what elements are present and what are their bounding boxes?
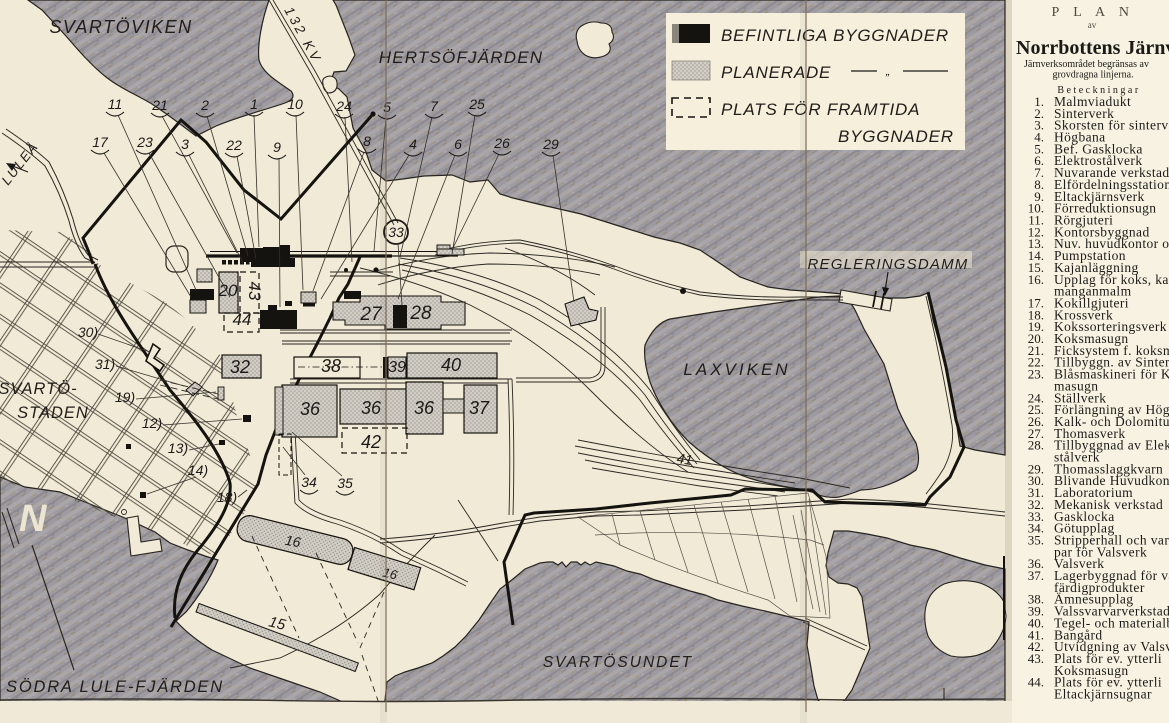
svg-text:37: 37 [469, 398, 490, 418]
svg-text:SVARTÖ-: SVARTÖ- [0, 380, 78, 398]
svg-text:18): 18) [217, 489, 237, 505]
svg-text:9: 9 [273, 139, 281, 155]
svg-text:8: 8 [363, 133, 371, 149]
svg-text:26: 26 [493, 135, 510, 151]
svg-text:7: 7 [430, 98, 439, 114]
svg-text:STADEN: STADEN [17, 404, 89, 422]
svg-text:22: 22 [225, 137, 242, 153]
svg-text:23: 23 [136, 134, 153, 150]
svg-text:20: 20 [218, 281, 238, 300]
svg-text:36: 36 [300, 399, 321, 419]
svg-text:36: 36 [361, 398, 382, 418]
svg-text:SÖDRA LULE-FJÄRDEN: SÖDRA LULE-FJÄRDEN [6, 678, 224, 696]
svg-text:39: 39 [388, 359, 406, 376]
svg-text:N: N [19, 498, 48, 540]
svg-text:43.: 43. [1028, 651, 1044, 666]
svg-text:41: 41 [676, 450, 694, 468]
svg-text:21: 21 [151, 97, 168, 113]
svg-text:P L A N: P L A N [1052, 5, 1135, 20]
svg-text:10: 10 [287, 96, 303, 112]
svg-text:32: 32 [230, 357, 250, 377]
svg-text:31): 31) [95, 356, 115, 372]
svg-text:19): 19) [115, 389, 135, 405]
svg-text:11: 11 [108, 96, 123, 112]
svg-text:1: 1 [250, 96, 258, 112]
svg-text:4: 4 [409, 136, 417, 152]
svg-text:17: 17 [92, 134, 109, 150]
svg-text:LAXVIKEN: LAXVIKEN [683, 360, 790, 379]
svg-text:grovdragna linjerna.: grovdragna linjerna. [1052, 70, 1133, 81]
svg-text:44: 44 [233, 310, 252, 329]
svg-text:2: 2 [200, 97, 209, 113]
svg-text:38: 38 [321, 356, 341, 376]
svg-text:28: 28 [409, 303, 432, 324]
svg-text:34: 34 [301, 474, 317, 490]
svg-text:16: 16 [284, 532, 302, 550]
svg-text:Järnverksområdet begränsas av: Järnverksområdet begränsas av [1024, 59, 1149, 70]
svg-text:24: 24 [335, 98, 352, 114]
svg-text:44.: 44. [1028, 675, 1044, 690]
svg-text:13): 13) [168, 440, 188, 456]
svg-text:PLANERADE: PLANERADE [721, 63, 831, 82]
svg-text:Norrbottens Järnverk: Norrbottens Järnverk [1016, 37, 1169, 59]
svg-text:27: 27 [359, 304, 383, 325]
svg-text:SVARTÖSUNDET: SVARTÖSUNDET [543, 653, 693, 671]
svg-text:28.: 28. [1028, 438, 1044, 453]
svg-text:23.: 23. [1028, 367, 1044, 382]
svg-text:6: 6 [454, 136, 462, 152]
svg-text:30): 30) [78, 324, 98, 340]
svg-text:16.: 16. [1028, 272, 1044, 287]
svg-text:„: „ [885, 64, 890, 78]
svg-text:37.: 37. [1028, 568, 1044, 583]
svg-text:BYGGNADER: BYGGNADER [838, 127, 954, 146]
svg-text:36: 36 [414, 398, 435, 418]
svg-text:33: 33 [388, 224, 404, 240]
svg-text:SVARTÖVIKEN: SVARTÖVIKEN [49, 17, 192, 37]
svg-text:40: 40 [441, 355, 461, 375]
svg-text:35.: 35. [1028, 533, 1044, 548]
svg-text:HERTSÖFJÄRDEN: HERTSÖFJÄRDEN [379, 48, 544, 67]
svg-text:av: av [1088, 20, 1097, 30]
svg-text:3: 3 [181, 136, 189, 152]
svg-text:29: 29 [542, 136, 559, 152]
svg-text:12): 12) [142, 415, 162, 431]
svg-text:14): 14) [188, 462, 208, 478]
svg-text:35: 35 [337, 475, 353, 491]
svg-text:REGLERINGSDAMM: REGLERINGSDAMM [808, 256, 969, 273]
svg-text:BEFINTLIGA BYGGNADER: BEFINTLIGA BYGGNADER [721, 26, 949, 45]
svg-text:PLATS FÖR FRAMTIDA: PLATS FÖR FRAMTIDA [721, 100, 920, 119]
svg-text:Eltackjärnsugnar: Eltackjärnsugnar [1054, 687, 1152, 702]
svg-text:43: 43 [245, 282, 264, 301]
svg-text:25: 25 [468, 96, 485, 112]
svg-text:42: 42 [361, 432, 381, 452]
